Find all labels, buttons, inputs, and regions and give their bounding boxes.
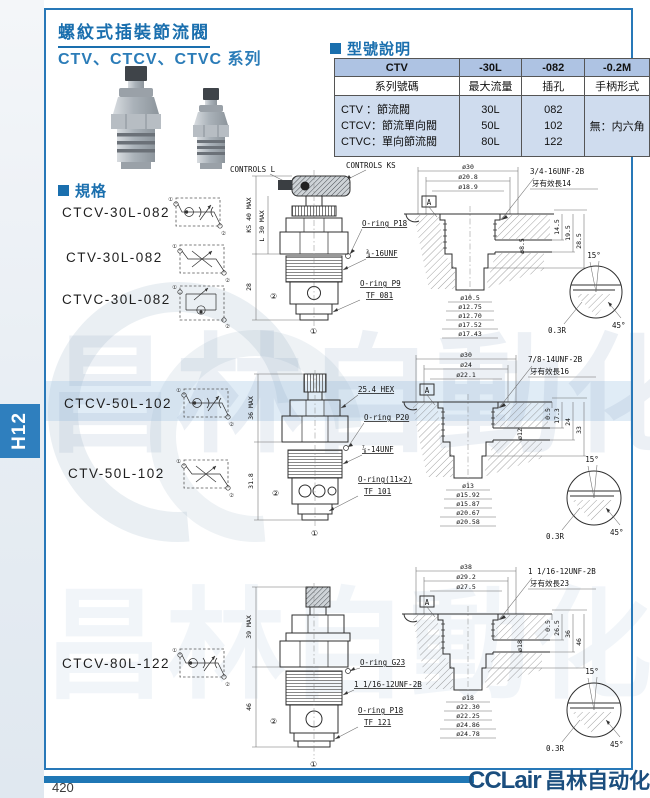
radius-label: 0.3R — [548, 326, 567, 335]
flow-cell: 30L 50L 80L — [459, 96, 522, 157]
port-1-label: ① — [310, 327, 317, 336]
controls-ks-label: CONTROLS KS — [346, 161, 396, 170]
dim-label: ø30 — [460, 351, 472, 359]
bore-dim: ø24.86 — [456, 721, 480, 729]
brand-logo: CCLair 昌林自动化 — [468, 765, 643, 795]
series-item: CTV ：節流閥 — [341, 102, 456, 118]
valve-photo-small — [180, 88, 242, 170]
bore-dim: ø13 — [462, 482, 474, 490]
hole-cell: 082 102 122 — [522, 96, 585, 157]
seat-detail-circle: 15° 0.3R 45° — [546, 455, 624, 541]
dim-label: 28 — [245, 283, 253, 291]
chapter-tab-label: H12 — [9, 412, 31, 450]
dim-label: ø18.9 — [458, 183, 478, 191]
dim-label: ø29.2 — [456, 573, 476, 581]
chamfer-label: 45° — [612, 321, 626, 330]
brand-cjk: 昌林自动化 — [545, 770, 650, 793]
table-body-row: CTV ：節流閥 CTCV：節流單向閥 CTVC：單向節流閥 30L 50L 8… — [335, 96, 650, 157]
depth-dim: 0.5 — [544, 408, 552, 420]
svg-text:①: ① — [172, 285, 177, 291]
model-label: CTCV-30L-082 — [62, 205, 170, 220]
ctcv-schematic-icon: ① ② — [168, 190, 226, 236]
bore-dim: ø20.67 — [456, 509, 480, 517]
bore-dim: ø17.43 — [458, 330, 482, 338]
chamfer-label: 45° — [610, 528, 624, 537]
bore-dim: ø12.70 — [458, 312, 482, 320]
dim-label: L 30 MAX — [258, 210, 266, 241]
ctcv-schematic-icon: ① ② — [172, 641, 230, 687]
dim-label: KS 40 MAX — [245, 197, 253, 232]
depth-dim: 33 — [575, 426, 583, 434]
depth-dim: 46 — [575, 638, 583, 646]
model-label: CTCV-50L-102 — [64, 396, 172, 411]
model-label: CTV-50L-102 — [68, 466, 165, 481]
side-port-dim: ø12 — [516, 428, 524, 440]
thread-length-note: 牙有效長14 — [532, 178, 572, 188]
bore-dim: ø15.92 — [456, 491, 480, 499]
thread-length-note: 牙有效長23 — [530, 578, 569, 588]
spec-heading: 規格 — [58, 180, 107, 201]
depth-dim: 36 — [564, 630, 572, 638]
model-code-heading-label: 型號說明 — [347, 38, 411, 59]
side-port-dim: ø8.5 — [518, 238, 526, 254]
datum-label: A — [425, 386, 430, 395]
port-1-label: ① — [311, 529, 318, 538]
series-cell: CTV ：節流閥 CTCV：節流單向閥 CTVC：單向節流閥 — [335, 96, 460, 157]
label-cell: 手柄形式 — [585, 77, 650, 96]
bore-dim: ø22.30 — [456, 703, 480, 711]
svg-text:①: ① — [176, 388, 181, 394]
depth-dim: 0.5 — [544, 620, 552, 632]
page-number: 420 — [52, 780, 74, 795]
depth-dim: 24 — [564, 418, 572, 426]
bore-dim: ø18 — [462, 694, 474, 702]
oring-label: O-ring P9 — [360, 279, 401, 288]
page-title: 螺紋式插裝節流閥 — [58, 18, 210, 48]
dim-label: 31.8 — [247, 473, 255, 489]
angle-label: 15° — [585, 667, 599, 676]
label-cell: 插孔 — [522, 77, 585, 96]
oring-label: O-ring G23 — [360, 658, 405, 667]
bore-dim: ø24.78 — [456, 730, 480, 738]
port-2-label: ② — [270, 292, 277, 301]
cavity-30l-drawing: ø30 ø20.8 ø18.9 3/4-16UNF-2B 牙有效長14 A ø8… — [402, 162, 634, 348]
footer-bar — [44, 776, 474, 783]
tf-label: TF 081 — [366, 291, 393, 300]
ctcv-schematic-icon: ① ② — [176, 381, 234, 427]
depth-dim: 28.5 — [575, 233, 583, 249]
datum-label: A — [425, 598, 430, 607]
header-cell: CTV — [335, 59, 460, 77]
bore-dim: ø10.5 — [460, 294, 480, 302]
cavity-thread-label: 7/8-14UNF-2B — [528, 355, 583, 364]
cavity-50l-drawing: ø30 ø24 ø22.1 7/8-14UNF-2B 牙有效長16 A ø12 … — [400, 350, 632, 556]
model-label: CTV-30L-082 — [66, 250, 163, 265]
radius-label: 0.3R — [546, 532, 565, 541]
svg-text:①: ① — [176, 459, 181, 465]
blue-square-bullet — [330, 43, 341, 54]
brand-latin: CCLair — [468, 767, 541, 794]
blue-square-bullet — [58, 185, 69, 196]
label-cell: 最大流量 — [459, 77, 522, 96]
model-code-table: CTV -30L -082 -0.2M 系列號碼 最大流量 插孔 手柄形式 CT… — [334, 58, 650, 157]
hex-label: 25.4 HEX — [358, 385, 395, 394]
oring-label: O-ring P18 — [362, 219, 408, 228]
bore-dim: ø20.58 — [456, 518, 480, 526]
left-margin-band — [0, 0, 44, 798]
header-cell: -0.2M — [585, 59, 650, 77]
series-item: CTVC：單向節流閥 — [341, 134, 456, 150]
spec-heading-label: 規格 — [75, 180, 107, 201]
seat-detail-circle: 15° 0.3R 45° — [548, 251, 626, 335]
dim-label: ø22.1 — [456, 371, 476, 379]
table-header-row: CTV -30L -082 -0.2M — [335, 59, 650, 77]
radius-label: 0.3R — [546, 744, 565, 753]
dim-label: ø24 — [460, 361, 472, 369]
model-label: CTCV-80L-122 — [62, 656, 170, 671]
valve-photo-large — [92, 66, 180, 170]
svg-text:①: ① — [172, 244, 177, 250]
chamfer-label: 45° — [610, 740, 624, 749]
side-port-dim: ø18 — [516, 640, 524, 652]
angle-label: 15° — [587, 251, 601, 260]
model-code-heading: 型號說明 — [330, 38, 411, 59]
bore-dim: ø12.75 — [458, 303, 482, 311]
angle-label: 15° — [585, 455, 599, 464]
port-1-label: ① — [310, 760, 317, 769]
cavity-80l-drawing: ø38 ø29.2 ø27.5 1 1/16-12UNF-2B 牙有效長23 A… — [400, 562, 632, 768]
label-cell: 系列號碼 — [335, 77, 460, 96]
dim-label: ø27.5 — [456, 583, 476, 591]
model-label: CTVC-30L-082 — [62, 292, 171, 307]
catalog-page: 昌林自動化 昌林自動化 螺紋式插裝節流閥 CTV、CTCV、CTVC 系列 — [0, 0, 650, 798]
bore-dim: ø22.25 — [456, 712, 480, 720]
cavity-thread-label: 3/4-16UNF-2B — [530, 167, 585, 176]
datum-label: A — [427, 198, 432, 207]
header-cell: -30L — [459, 59, 522, 77]
port-2-label: ② — [270, 717, 277, 726]
seat-detail-circle: 15° 0.3R 45° — [546, 667, 624, 753]
depth-dim: 26.5 — [553, 620, 561, 636]
dim-label: 46 — [245, 703, 253, 711]
depth-dim: 14.5 — [553, 219, 561, 235]
handle-cell: 無：内六角 — [585, 96, 650, 157]
thread-length-note: 牙有效長16 — [530, 366, 570, 376]
bore-dim: ø17.52 — [458, 321, 482, 329]
ctv-schematic-icon: ① ② — [172, 237, 230, 283]
ctv-schematic-icon: ① ② — [176, 452, 234, 498]
depth-dim: 17.3 — [553, 408, 561, 424]
dim-label: 36 MAX — [247, 396, 255, 420]
table-label-row: 系列號碼 最大流量 插孔 手柄形式 — [335, 77, 650, 96]
svg-text:②: ② — [221, 230, 226, 237]
oring-label: O-ring P18 — [358, 706, 404, 715]
port-2-label: ② — [272, 489, 279, 498]
ctvc-schematic-icon: ① ② — [172, 280, 230, 328]
controls-l-label: CONTROLS L — [230, 165, 276, 174]
header-cell: -082 — [522, 59, 585, 77]
bore-dim: ø15.87 — [456, 500, 480, 508]
dim-label: ø20.8 — [458, 173, 478, 181]
thread-label: ¾-16UNF — [366, 249, 398, 258]
dim-label: ø38 — [460, 563, 472, 571]
svg-text:①: ① — [172, 648, 177, 654]
depth-dim: 19.5 — [564, 225, 572, 241]
tf-label: TF 101 — [364, 487, 391, 496]
dim-label: ø30 — [462, 163, 474, 171]
svg-text:①: ① — [168, 197, 173, 203]
thread-label: ⅞-14UNF — [362, 445, 394, 454]
dim-label: 39 MAX — [245, 615, 253, 639]
cavity-thread-label: 1 1/16-12UNF-2B — [528, 567, 596, 576]
chapter-tab-h12: H12 — [0, 404, 40, 458]
series-item: CTCV：節流單向閥 — [341, 118, 456, 134]
tf-label: TF 121 — [364, 718, 391, 727]
